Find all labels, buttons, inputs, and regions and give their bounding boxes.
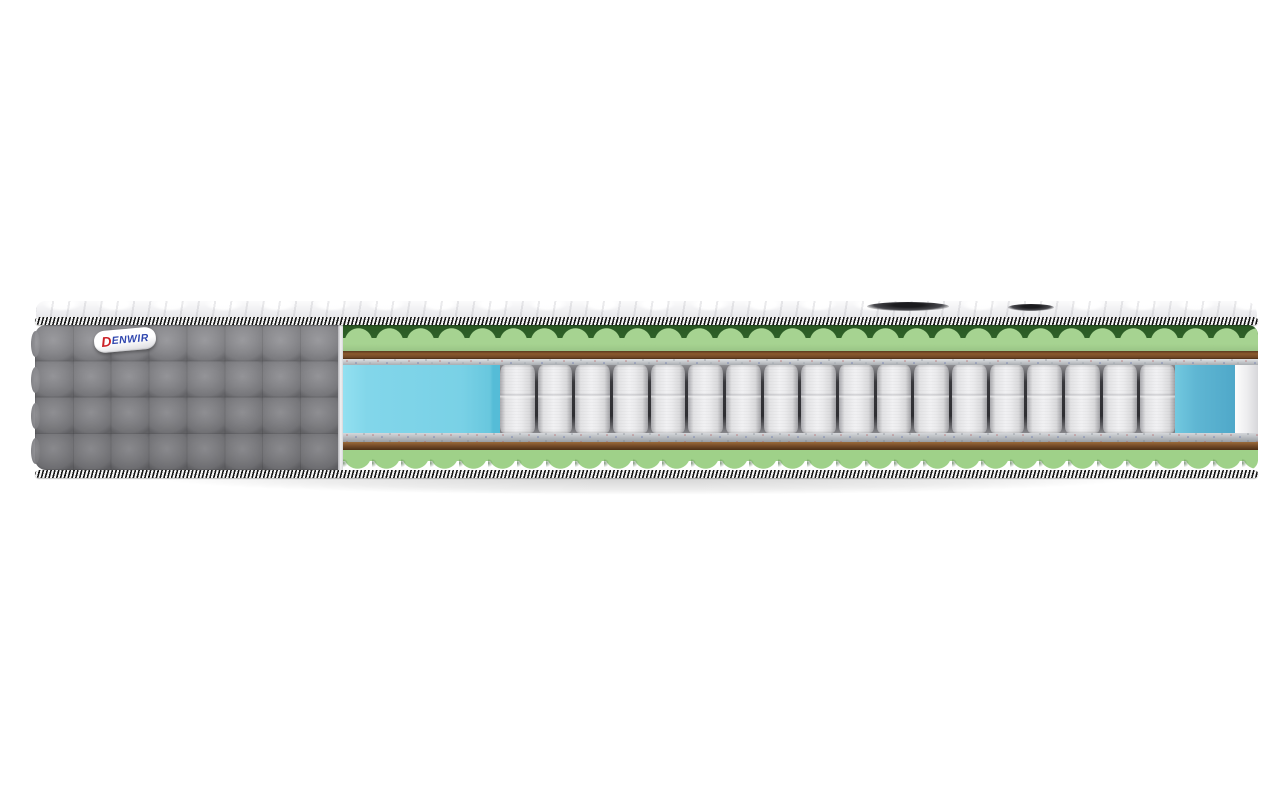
cover-edge-bump <box>31 367 40 393</box>
pocket-spring <box>575 365 610 433</box>
inner-layer-stack <box>343 325 1258 470</box>
mattress-cutaway: DENWIR <box>35 301 1258 479</box>
cover-edge-bump <box>31 331 40 357</box>
pocket-spring <box>613 365 648 433</box>
layer-wave-foam-top <box>343 325 1258 351</box>
layer-felt-bottom <box>343 433 1258 442</box>
top-handle-mark <box>867 302 949 311</box>
product-image: DENWIR <box>0 0 1280 800</box>
pocket-spring <box>1140 365 1175 433</box>
inner-end-shading <box>1235 365 1258 433</box>
pocket-spring <box>801 365 836 433</box>
side-support-foam-right <box>1175 365 1235 433</box>
pocket-springs <box>500 365 1175 433</box>
pocket-spring <box>990 365 1025 433</box>
pocket-spring <box>952 365 987 433</box>
layer-coir-bottom <box>343 442 1258 450</box>
brand-name-rest: ENWIR <box>111 333 149 347</box>
pocket-spring <box>914 365 949 433</box>
mattress-top-surface <box>36 301 1257 318</box>
pocket-spring <box>688 365 723 433</box>
piping-bottom <box>35 470 1258 478</box>
pocket-spring <box>1103 365 1138 433</box>
pocket-spring <box>651 365 686 433</box>
mattress-body: DENWIR <box>35 325 1258 470</box>
pocket-spring <box>1027 365 1062 433</box>
pocket-spring <box>764 365 799 433</box>
pocket-spring <box>538 365 573 433</box>
cover-edge-bump <box>31 438 40 464</box>
pocket-spring <box>877 365 912 433</box>
layer-coir-top <box>343 351 1258 359</box>
pocket-spring <box>1065 365 1100 433</box>
layer-wave-foam-bottom <box>343 450 1258 470</box>
brand-label: DENWIR <box>93 326 157 353</box>
ground-shadow <box>41 476 1252 498</box>
pocket-spring <box>500 365 535 433</box>
spring-core <box>343 365 1258 433</box>
pocket-spring <box>726 365 761 433</box>
pocket-spring <box>839 365 874 433</box>
cover-edge-bump <box>31 403 40 429</box>
piping-top <box>35 317 1258 325</box>
side-support-foam-left <box>343 365 500 433</box>
quilted-side-cover: DENWIR <box>35 325 338 470</box>
top-handle-mark <box>1008 304 1054 311</box>
